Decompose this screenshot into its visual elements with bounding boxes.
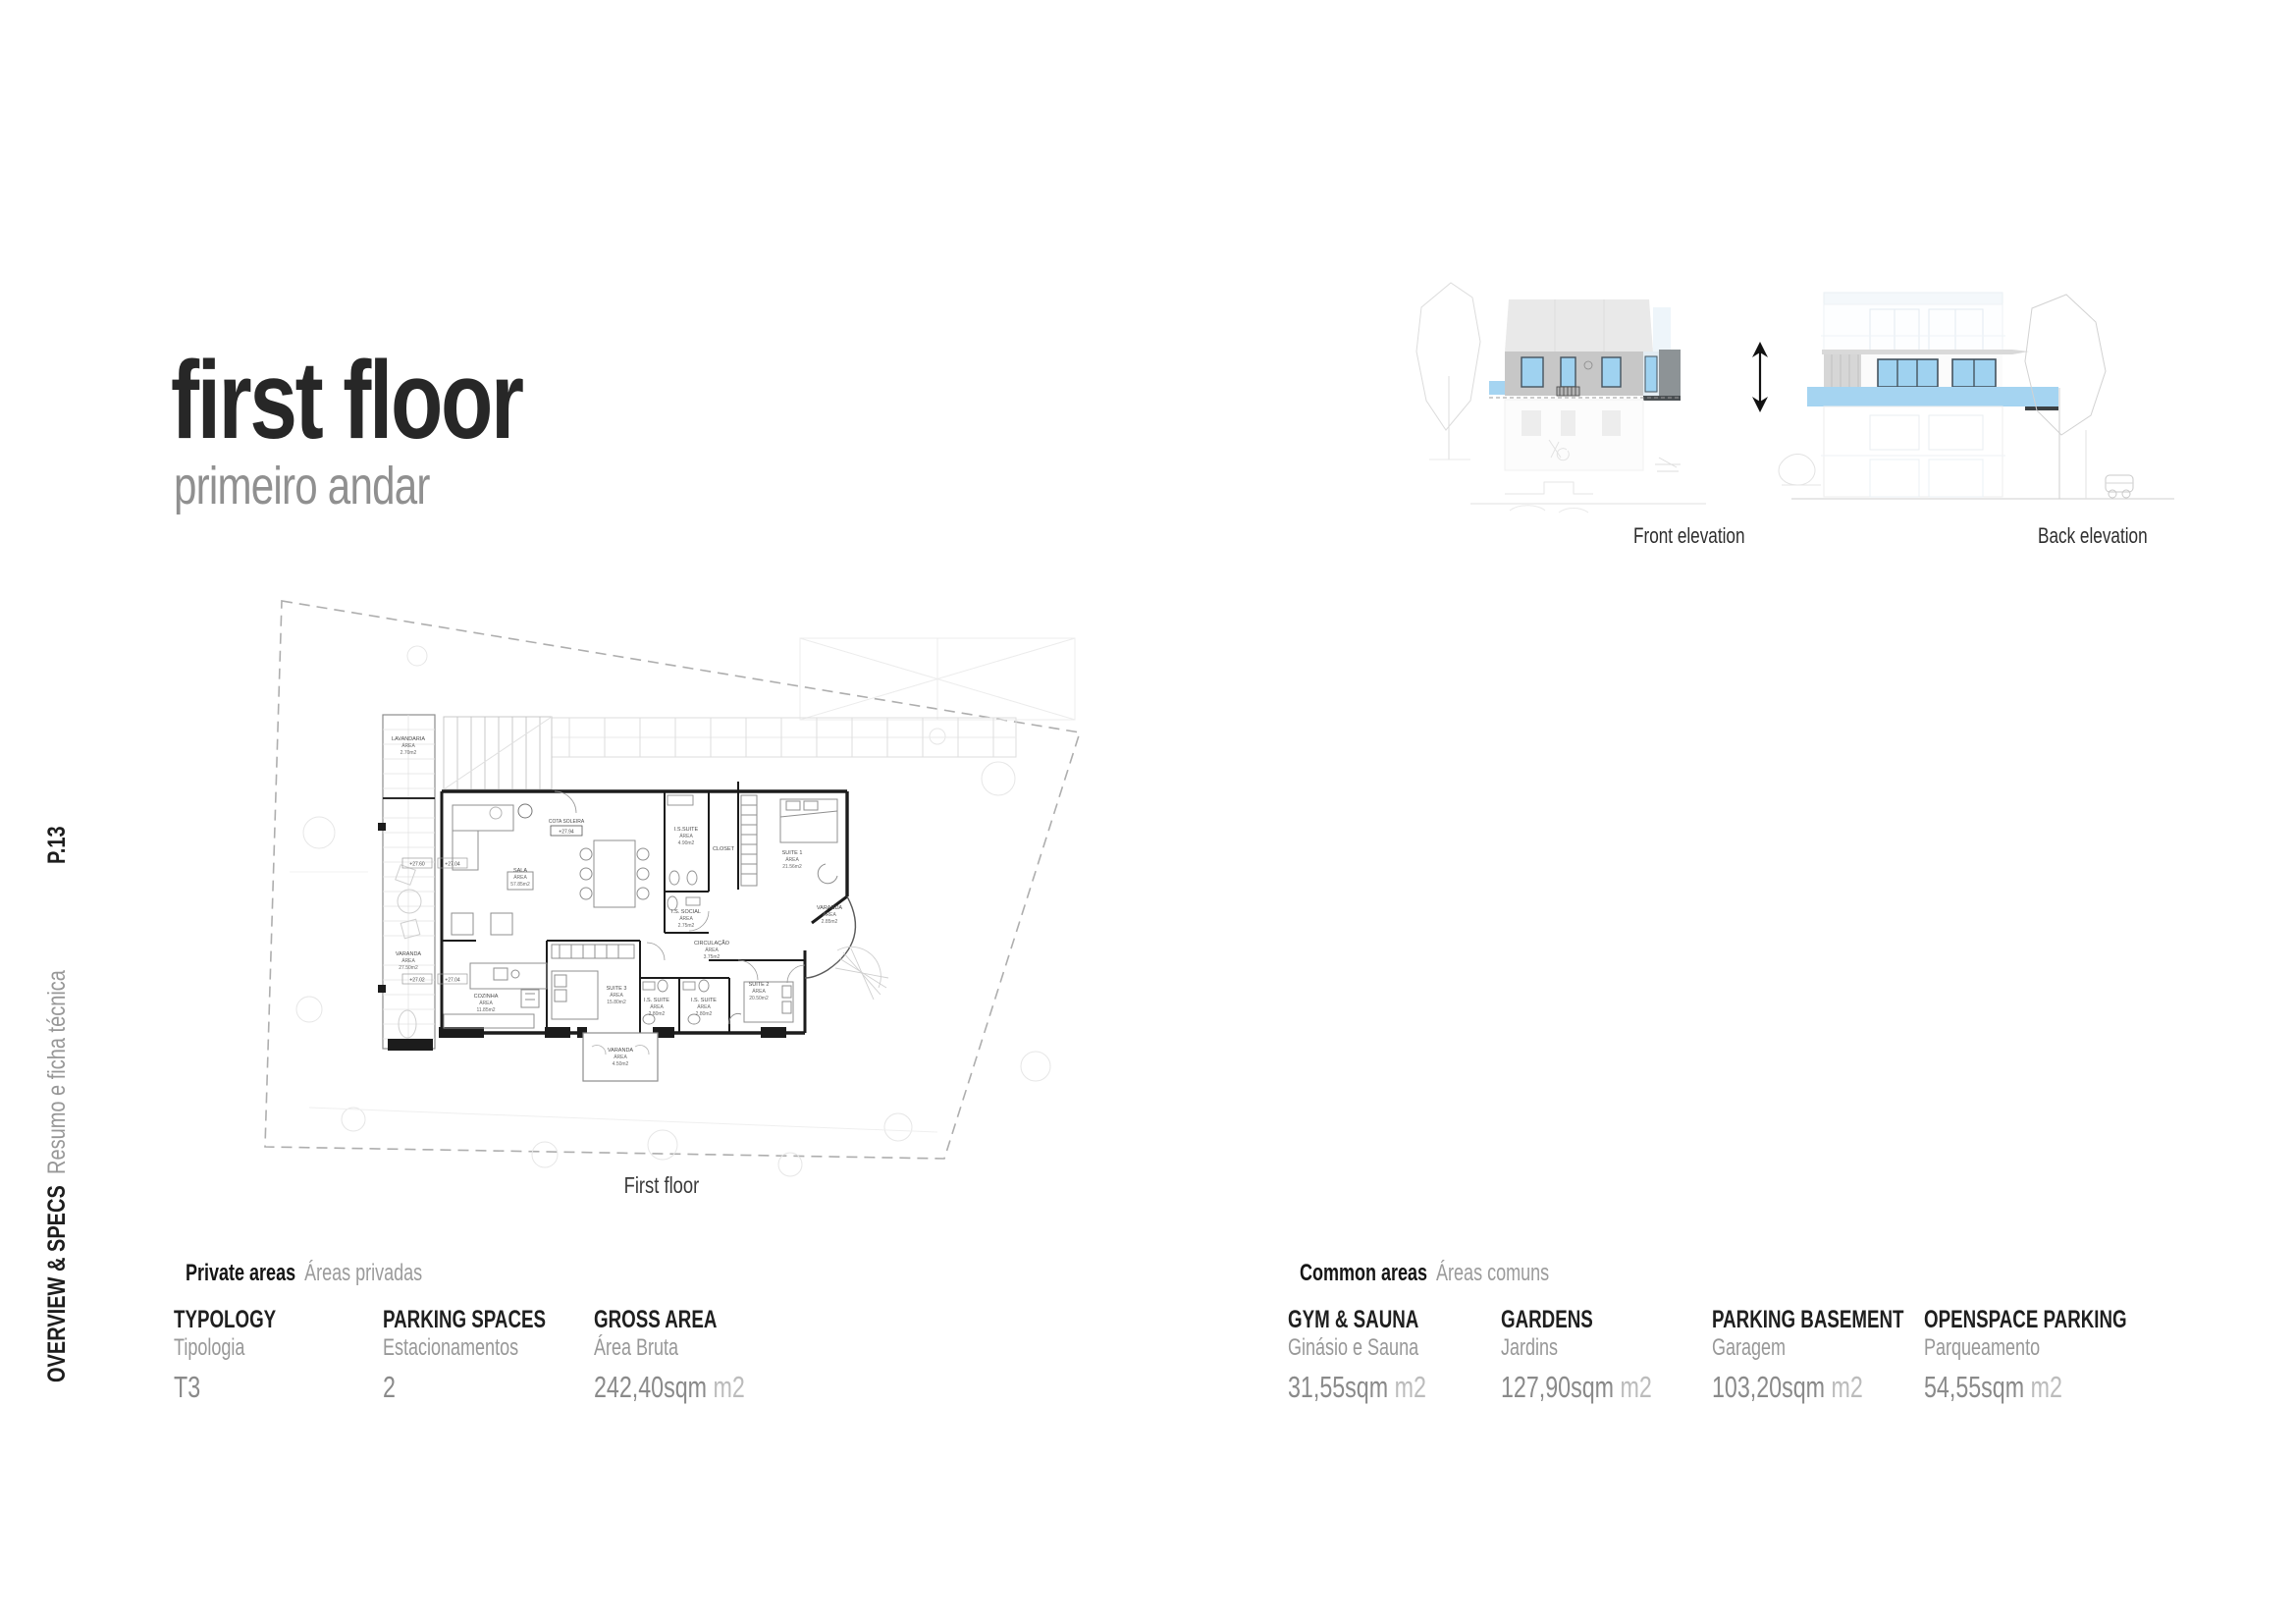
attic-volume — [1505, 299, 1653, 352]
floor-plan-drawing: COTA SOLEIRA +27.94 +27.60 +27.04 +27.02… — [250, 577, 1114, 1191]
balcony-band — [1807, 387, 2058, 406]
room-label: CIRCULAÇÃOÁREA3.75m2 — [694, 940, 730, 960]
room-label: CLOSET — [713, 846, 735, 852]
svg-text:ÁREA: ÁREA — [823, 911, 836, 918]
common-areas-title: Common areasÁreas comuns — [1288, 1260, 1632, 1287]
svg-text:VARANDA: VARANDA — [817, 905, 843, 911]
svg-text:I.S.SUITE: I.S.SUITE — [674, 827, 699, 833]
svg-text:4.90m2: 4.90m2 — [678, 840, 695, 846]
spec-gardens: GARDENS Jardins 127,90sqm m2 — [1501, 1306, 1702, 1404]
svg-text:LAVANDARIA: LAVANDARIA — [392, 736, 425, 742]
svg-text:CIRCULAÇÃO: CIRCULAÇÃO — [694, 940, 730, 947]
spec-label: TYPOLOGY — [174, 1306, 276, 1334]
spec-value: 2 — [383, 1371, 546, 1404]
attic-side — [1653, 307, 1671, 352]
svg-text:4.50m2: 4.50m2 — [613, 1061, 629, 1067]
svg-text:COTA SOLEIRA: COTA SOLEIRA — [549, 819, 585, 825]
svg-text:VARANDA: VARANDA — [608, 1048, 634, 1054]
room-label: COZINHAÁREA11.85m2 — [474, 994, 499, 1013]
spec-label: OPENSPACE PARKING — [1924, 1306, 2127, 1334]
svg-text:I.S. SUITE: I.S. SUITE — [644, 998, 669, 1003]
room-label: I.S. SUITEÁREA2.80m2 — [691, 998, 717, 1017]
svg-text:I.S. SUITE: I.S. SUITE — [691, 998, 717, 1003]
spec-value: 54,55sqm m2 — [1924, 1371, 2127, 1404]
svg-text:SALA: SALA — [513, 868, 527, 874]
spec-typology: TYPOLOGY Tipologia T3 — [174, 1306, 310, 1404]
front-elevation-label: Front elevation — [1633, 523, 1777, 549]
spiral-stair — [835, 947, 888, 1000]
spec-sublabel: Parqueamento — [1924, 1334, 2127, 1362]
svg-text:I.S. SOCIAL: I.S. SOCIAL — [671, 909, 701, 915]
plan-caption: First floor — [563, 1172, 760, 1199]
spec-sublabel: Ginásio e Sauna — [1288, 1334, 1426, 1362]
lower-floors-faint — [1821, 406, 2005, 497]
svg-text:CLOSET: CLOSET — [713, 846, 735, 852]
svg-text:+27.94: +27.94 — [559, 830, 574, 836]
spec-value: 31,55sqm m2 — [1288, 1371, 1426, 1404]
svg-text:+27.60: +27.60 — [409, 862, 425, 868]
svg-text:57.85m2: 57.85m2 — [510, 882, 530, 888]
upper-terrace — [552, 718, 1016, 757]
spec-value: 103,20sqm m2 — [1712, 1371, 1904, 1404]
spec-value: 242,40sqm m2 — [594, 1371, 745, 1404]
pergola-hatch — [800, 638, 1075, 720]
svg-text:COZINHA: COZINHA — [474, 994, 499, 1000]
svg-text:SUITE 1: SUITE 1 — [782, 850, 803, 856]
back-elevation-drawing — [1772, 263, 2184, 558]
left-balcony — [378, 715, 435, 1049]
page-number-text: P.13 — [43, 826, 71, 864]
svg-text:27.50m2: 27.50m2 — [399, 965, 418, 971]
dark-volume — [1659, 350, 1681, 396]
svg-text:ÁREA: ÁREA — [401, 957, 415, 964]
svg-text:3.75m2: 3.75m2 — [704, 954, 721, 960]
spec-sublabel: Tipologia — [174, 1334, 276, 1362]
svg-text:2.80m2: 2.80m2 — [649, 1011, 666, 1017]
room-label: I.S. SOCIALÁREA2.75m2 — [671, 909, 701, 929]
back-windows — [1878, 359, 1996, 387]
svg-text:+27.04: +27.04 — [445, 978, 460, 984]
tree-sketch — [1416, 283, 1480, 460]
front-windows — [1522, 357, 1621, 387]
svg-text:15.80m2: 15.80m2 — [607, 1000, 626, 1005]
sidebar-section-subtitle: Resumo e ficha técnica — [43, 970, 71, 1174]
page-title: first floor — [171, 346, 621, 456]
balcony-railing — [1557, 387, 1579, 396]
side-balcony-band — [1489, 381, 1505, 395]
svg-text:2.80m2: 2.80m2 — [696, 1011, 713, 1017]
svg-text:ÁREA: ÁREA — [697, 1003, 711, 1010]
spec-sublabel: Jardins — [1501, 1334, 1652, 1362]
svg-text:11.85m2: 11.85m2 — [476, 1007, 495, 1013]
spec-parking-spaces: PARKING SPACES Estacionamentos 2 — [383, 1306, 600, 1404]
svg-text:21.56m2: 21.56m2 — [782, 864, 802, 870]
front-elevation-drawing — [1412, 263, 1726, 558]
back-elevation-label: Back elevation — [2038, 523, 2178, 549]
svg-text:ÁREA: ÁREA — [614, 1054, 627, 1060]
svg-text:ÁREA: ÁREA — [705, 947, 719, 953]
svg-text:ÁREA: ÁREA — [679, 833, 693, 839]
svg-text:ÁREA: ÁREA — [513, 874, 527, 881]
room-label: SUITE 1ÁREA21.56m2 — [782, 850, 803, 870]
brochure-page: P.13 OVERVIEW & SPECSResumo e ficha técn… — [0, 0, 2296, 1624]
upper-floors-faint — [1821, 293, 2005, 353]
spec-value: 127,90sqm m2 — [1501, 1371, 1652, 1404]
svg-text:+27.02: +27.02 — [409, 978, 425, 984]
spec-label: GARDENS — [1501, 1306, 1652, 1334]
spec-label: PARKING SPACES — [383, 1306, 546, 1334]
spec-label: GROSS AREA — [594, 1306, 745, 1334]
svg-text:ÁREA: ÁREA — [785, 856, 799, 863]
room-label: SALAÁREA57.85m2 — [510, 868, 530, 888]
svg-text:ÁREA: ÁREA — [752, 988, 766, 995]
room-label: SUITE 2ÁREA20.50m2 — [749, 982, 770, 1001]
sidebar-section: OVERVIEW & SPECSResumo e ficha técnica — [43, 970, 72, 1382]
stairs — [444, 717, 552, 789]
suite3-furniture — [552, 945, 634, 1019]
page-number: P.13 — [43, 826, 72, 864]
suite1-furniture — [741, 795, 837, 886]
svg-text:ÁREA: ÁREA — [679, 915, 693, 922]
balcony-band-shadow — [2025, 406, 2058, 410]
room-labels: LAVANDARIAÁREA2.70m2 VARANDAÁREA27.50m2 … — [392, 736, 842, 1067]
svg-text:ÁREA: ÁREA — [401, 742, 415, 749]
svg-text:2.70m2: 2.70m2 — [400, 750, 417, 756]
svg-text:2.85m2: 2.85m2 — [822, 919, 838, 925]
ground-floor-faint — [1470, 400, 1706, 513]
room-label: I.S. SUITEÁREA2.80m2 — [644, 998, 669, 1017]
svg-text:ÁREA: ÁREA — [479, 1000, 493, 1006]
svg-text:ÁREA: ÁREA — [610, 992, 623, 999]
spec-sublabel: Garagem — [1712, 1334, 1904, 1362]
private-areas-title: Private areasÁreas privadas — [174, 1260, 502, 1287]
spec-openspace-parking: OPENSPACE PARKING Parqueamento 54,55sqm … — [1924, 1306, 2195, 1404]
door-arcs — [555, 791, 805, 983]
svg-text:20.50m2: 20.50m2 — [749, 996, 769, 1001]
floor-top-edge — [1822, 350, 2012, 354]
svg-text:+27.04: +27.04 — [445, 862, 460, 868]
svg-text:2.75m2: 2.75m2 — [678, 923, 695, 929]
page-subtitle: primeiro andar — [174, 460, 502, 513]
spec-label: GYM & SAUNA — [1288, 1306, 1426, 1334]
svg-text:SUITE 3: SUITE 3 — [607, 986, 627, 992]
spec-label: PARKING BASEMENT — [1712, 1306, 1904, 1334]
svg-text:VARANDA: VARANDA — [396, 951, 422, 957]
svg-text:SUITE 2: SUITE 2 — [749, 982, 770, 988]
spec-gross-area: GROSS AREA Área Bruta 242,40sqm m2 — [594, 1306, 795, 1404]
spec-sublabel: Estacionamentos — [383, 1334, 546, 1362]
sidebar-section-title: OVERVIEW & SPECS — [43, 1185, 71, 1382]
svg-text:ÁREA: ÁREA — [650, 1003, 664, 1010]
spec-gym-sauna: GYM & SAUNA Ginásio e Sauna 31,55sqm m2 — [1288, 1306, 1472, 1404]
room-label: I.S.SUITEÁREA4.90m2 — [674, 827, 699, 846]
spec-value: T3 — [174, 1371, 276, 1404]
room-label: SUITE 3ÁREA15.80m2 — [607, 986, 627, 1005]
spec-sublabel: Área Bruta — [594, 1334, 745, 1362]
